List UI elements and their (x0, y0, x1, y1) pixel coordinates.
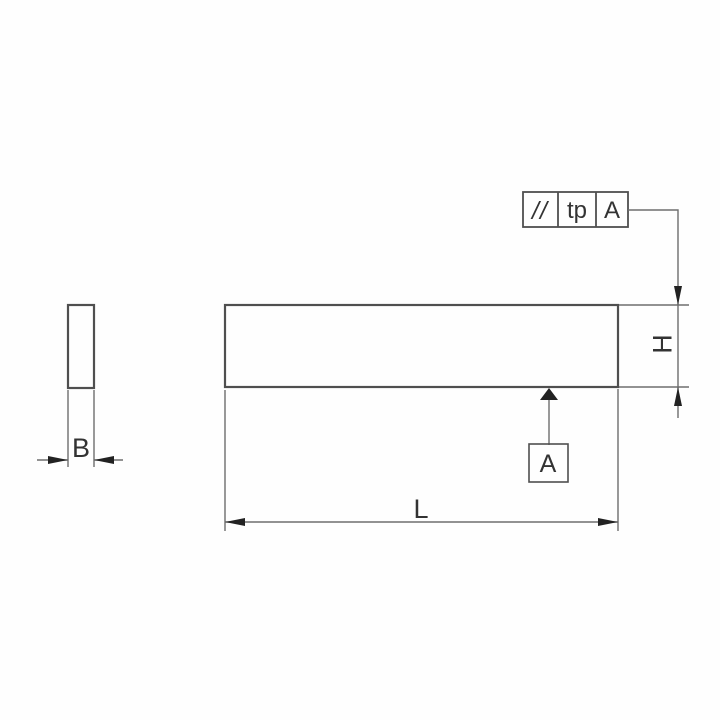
frame-datum-reference-label: A (604, 197, 620, 224)
tolerance-value-label: tp (567, 197, 587, 224)
width-dimension-label: B (72, 433, 90, 463)
datum-label: A (540, 450, 557, 478)
parallelism-symbol-icon: // (530, 197, 550, 225)
drawing-background (0, 0, 720, 720)
height-dimension-label: H (647, 334, 677, 354)
technical-drawing-page: // tp A A H L B (0, 0, 720, 720)
parallel-block-drawing: // tp A A H L B (0, 0, 720, 720)
length-dimension-label: L (413, 494, 428, 524)
